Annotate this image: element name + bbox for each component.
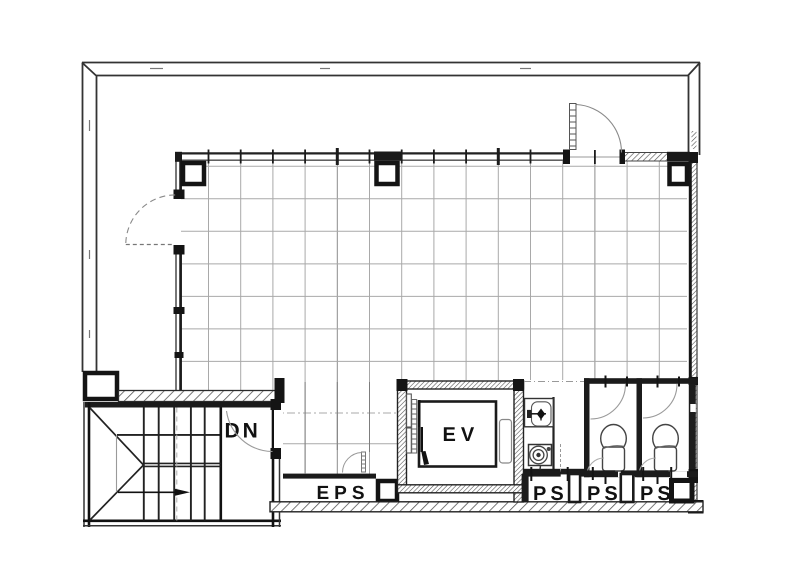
svg-text:EV: EV [443,424,480,446]
svg-text:PS: PS [587,483,622,505]
svg-text:EPS: EPS [317,483,370,504]
svg-text:PS: PS [533,483,568,505]
